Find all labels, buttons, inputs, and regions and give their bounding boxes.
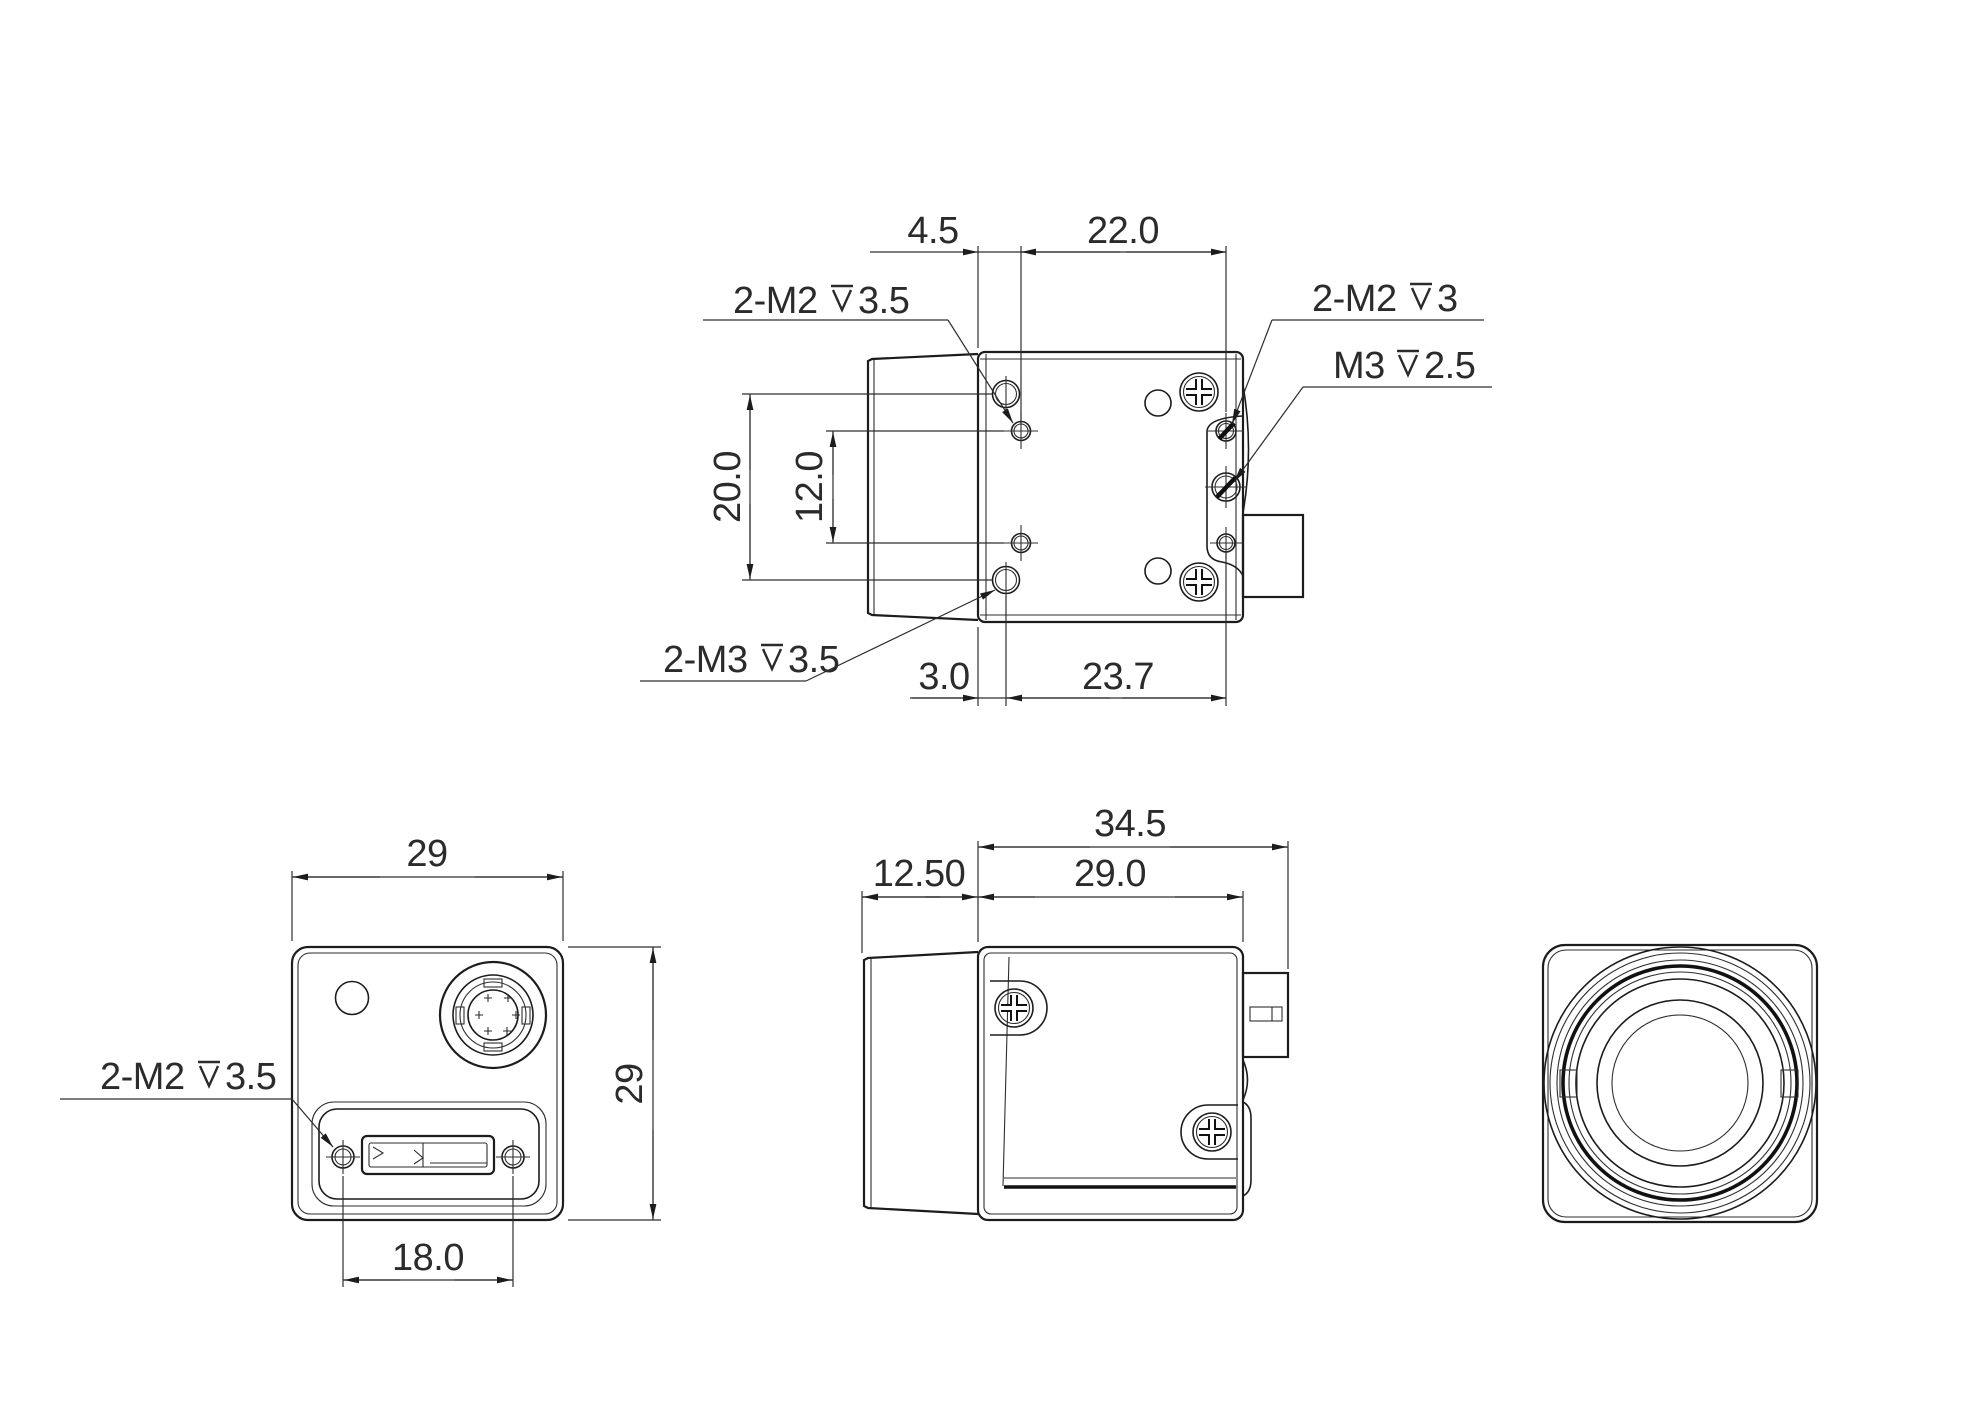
dim-3-0: 3.0 [918, 656, 969, 698]
svg-text:2-M2: 2-M2 [1312, 278, 1397, 320]
depth-symbol-icon [198, 1062, 220, 1086]
lens-aperture [1612, 1015, 1748, 1151]
dim-29-height: 29 [609, 1063, 651, 1104]
front-view [1543, 945, 1817, 1222]
svg-text:2.5: 2.5 [1424, 345, 1475, 387]
dim-29-0: 29.0 [1074, 853, 1146, 895]
side-view-lens-barrel [864, 952, 978, 1214]
m3-hole-top-left [993, 376, 1020, 412]
side-view-connector-block [1243, 973, 1288, 1196]
m3-hole-bottom-left [993, 562, 1020, 598]
svg-text:M3: M3 [1333, 345, 1385, 387]
clearance-hole-bottom [1145, 558, 1171, 584]
dim-22-0: 22.0 [1087, 210, 1159, 252]
m2-hole-top-right [1208, 413, 1244, 449]
dim-18-0: 18.0 [392, 1237, 464, 1279]
svg-text:3.5: 3.5 [225, 1056, 276, 1098]
dim-23-7: 23.7 [1082, 656, 1154, 698]
lens-mount-rings [1544, 947, 1816, 1219]
phillips-screw-top [1180, 373, 1218, 411]
top-view-labels: 2-M2 3.5 2-M3 3.5 2-M2 3 M3 [640, 278, 1492, 681]
m2-hole-bottom-left [1004, 525, 1038, 561]
svg-text:3: 3 [1437, 278, 1458, 320]
depth-symbol-icon [1410, 284, 1432, 308]
drawing-sheet: 4.5 22.0 3.0 23.7 20.0 12.0 2-M2 [0, 0, 1984, 1403]
usb-port [312, 1102, 546, 1206]
back-view: 29 29 18.0 2-M2 3.5 [60, 833, 661, 1287]
usb-screw-right [496, 1140, 530, 1174]
status-led-hole [336, 982, 369, 1015]
technical-drawing: 4.5 22.0 3.0 23.7 20.0 12.0 2-M2 [0, 0, 1984, 1403]
clearance-hole-top [1145, 390, 1171, 416]
top-view: 4.5 22.0 3.0 23.7 20.0 12.0 2-M2 [640, 210, 1492, 706]
side-view-body [978, 947, 1243, 1220]
depth-symbol-icon [831, 286, 853, 310]
dim-20-0: 20.0 [707, 451, 749, 523]
svg-text:2-M2: 2-M2 [733, 280, 818, 322]
label-m3-2-5-right: M3 2.5 [1234, 345, 1492, 482]
side-view: 34.5 12.50 29.0 [862, 803, 1288, 1220]
dim-12-50: 12.50 [873, 853, 966, 895]
top-view-body [978, 352, 1303, 622]
side-view-dimensions: 34.5 12.50 29.0 [862, 803, 1288, 969]
side-view-screw-boss-bottom [1181, 1105, 1238, 1159]
top-view-connector-block [1243, 515, 1303, 597]
dim-12-0: 12.0 [789, 451, 831, 523]
dim-4-5: 4.5 [907, 210, 958, 252]
dim-29-width: 29 [406, 833, 447, 875]
depth-symbol-icon [761, 645, 783, 669]
hirose-connector [440, 962, 546, 1068]
lens-inner-ring [1597, 1000, 1763, 1166]
usb3-microb-connector [362, 1136, 494, 1174]
phillips-screw-bottom [1180, 563, 1218, 601]
dim-34-5: 34.5 [1094, 803, 1166, 845]
svg-text:2-M3: 2-M3 [663, 639, 748, 681]
side-view-screw-boss-top [990, 981, 1047, 1035]
depth-symbol-icon [1397, 351, 1419, 375]
svg-text:3.5: 3.5 [788, 639, 839, 681]
svg-text:2-M2: 2-M2 [100, 1056, 185, 1098]
svg-text:3.5: 3.5 [858, 280, 909, 322]
